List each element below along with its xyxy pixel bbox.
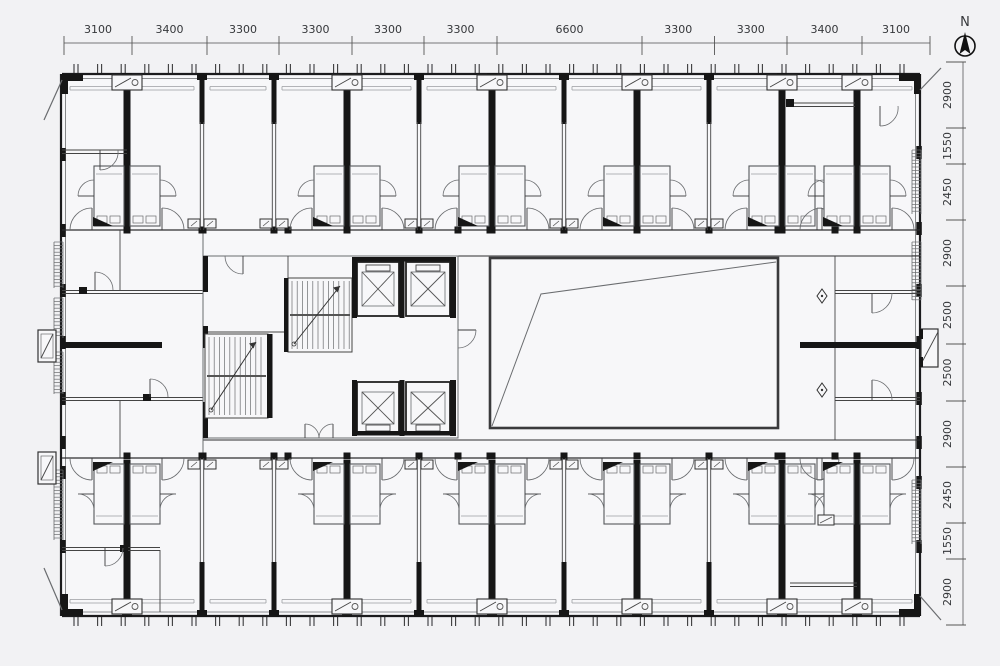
right-dim-label: 2900 [941,239,954,267]
right-dim-label: 2450 [941,178,954,206]
right-dim-label: 2900 [941,81,954,109]
top-dim-label: 3400 [156,23,184,36]
top-dim-label: 6600 [556,23,584,36]
right-dim-label: 2500 [941,359,954,387]
north-compass-icon: N [955,15,975,56]
north-label: N [960,15,970,30]
top-dim-label: 3300 [737,23,765,36]
top-dim-label: 3300 [664,23,692,36]
right-dim-label: 1550 [941,527,954,555]
top-dim-label: 3100 [882,23,910,36]
right-dim-label: 2450 [941,481,954,509]
right-dim-label: 1550 [941,132,954,160]
floor-plan-page: 3100340033003300330033006600330033003400… [0,0,1000,666]
atrium-void [490,258,778,428]
top-dim-label: 3300 [374,23,402,36]
dimension-strip-top: 3100340033003300330033006600330033003400… [64,23,930,55]
right-dim-label: 2900 [941,578,954,606]
top-dim-label: 3400 [811,23,839,36]
dimension-strip-right: 2900155024502900250025002900245015502900 [941,62,966,625]
floor-plan-drawing: 3100340033003300330033006600330033003400… [0,0,1000,666]
top-dim-label: 3300 [302,23,330,36]
top-dim-label: 3100 [84,23,112,36]
right-dim-label: 2500 [941,301,954,329]
top-dim-label: 3300 [229,23,257,36]
core [203,256,476,438]
top-dim-label: 3300 [447,23,475,36]
right-dim-label: 2900 [941,420,954,448]
